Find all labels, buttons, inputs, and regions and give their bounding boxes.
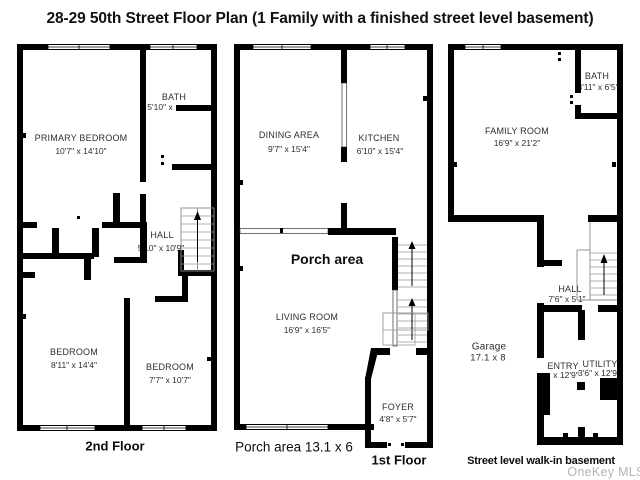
caption-2nd-floor: 2nd Floor (85, 439, 144, 454)
page-title: 28-29 50th Street Floor Plan (1 Family w… (0, 10, 640, 28)
window (465, 45, 501, 50)
room-label-garage: Garage (472, 342, 507, 353)
room-label-hall-basement: HALL (558, 284, 581, 294)
room-dims-bedroom-right: 7'7" x 10'7" (149, 375, 191, 385)
room-label-bath-basement: BATH (585, 71, 609, 81)
staircase-2nd-floor (181, 208, 214, 271)
room-dims-foyer: 4'8" x 5'7" (379, 414, 416, 424)
stairs-up-arrow-icon (409, 298, 416, 306)
staircase-basement (577, 222, 617, 300)
room-label-bedroom-left: BEDROOM (50, 347, 98, 357)
room-dims-utility: 3'6" x 12'9" (578, 368, 620, 378)
caption-1st-floor: 1st Floor (372, 453, 427, 468)
room-label-living-room: LIVING ROOM (276, 312, 338, 322)
room-dims-living-room: 16'9" x 16'5" (284, 325, 331, 335)
room-dims-primary-bedroom: 10'7" x 14'10" (55, 146, 106, 156)
floor-plan-page: 28-29 50th Street Floor Plan (1 Family w… (0, 0, 640, 480)
room-label-kitchen: KITCHEN (359, 133, 400, 143)
room-dims-kitchen: 6'10" x 15'4" (357, 146, 404, 156)
second-floor-walls (17, 44, 217, 431)
staircase-1st-floor (383, 241, 428, 345)
watermark-onekey-mls: OneKey MLS (567, 465, 640, 479)
basement-walls (448, 44, 623, 445)
stairs-up-arrow-icon (194, 211, 201, 220)
room-label-foyer: FOYER (382, 402, 414, 412)
room-dims-bedroom-left: 8'11" x 14'4" (51, 360, 97, 370)
room-label-bath-2nd: BATH (162, 92, 186, 102)
room-label-porch-area: Porch area (291, 251, 363, 267)
stairs-up-arrow-icon (601, 254, 608, 263)
floor-plan-drawing (0, 0, 640, 480)
caption-porch-area-note: Porch area 13.1 x 6 (235, 440, 353, 455)
room-label-family-room: FAMILY ROOM (485, 126, 549, 136)
stairs-up-arrow-icon (409, 241, 416, 249)
room-dims-family-room: 16'9" x 21'2" (494, 138, 541, 148)
room-label-primary-bedroom: PRIMARY BEDROOM (35, 133, 128, 143)
room-label-hall-2nd: HALL (150, 230, 173, 240)
room-dims-entry: x 12'9" (553, 370, 578, 380)
room-dims-bath-2nd: 5'10" x (147, 102, 172, 112)
room-label-dining-area: DINING AREA (259, 130, 319, 140)
room-label-bedroom-right: BEDROOM (146, 362, 194, 372)
room-dims-hall-basement: 7'6" x 5'1" (548, 294, 585, 304)
room-dims-bath-basement: 3'11" x 6'5" (577, 82, 618, 92)
first-floor-walls (234, 44, 433, 448)
room-dims-garage: 17.1 x 8 (470, 353, 505, 364)
room-dims-hall-2nd: 5'10" x 10'9" (138, 243, 185, 253)
window (246, 45, 405, 430)
room-dims-dining-area: 9'7" x 15'4" (268, 144, 310, 154)
